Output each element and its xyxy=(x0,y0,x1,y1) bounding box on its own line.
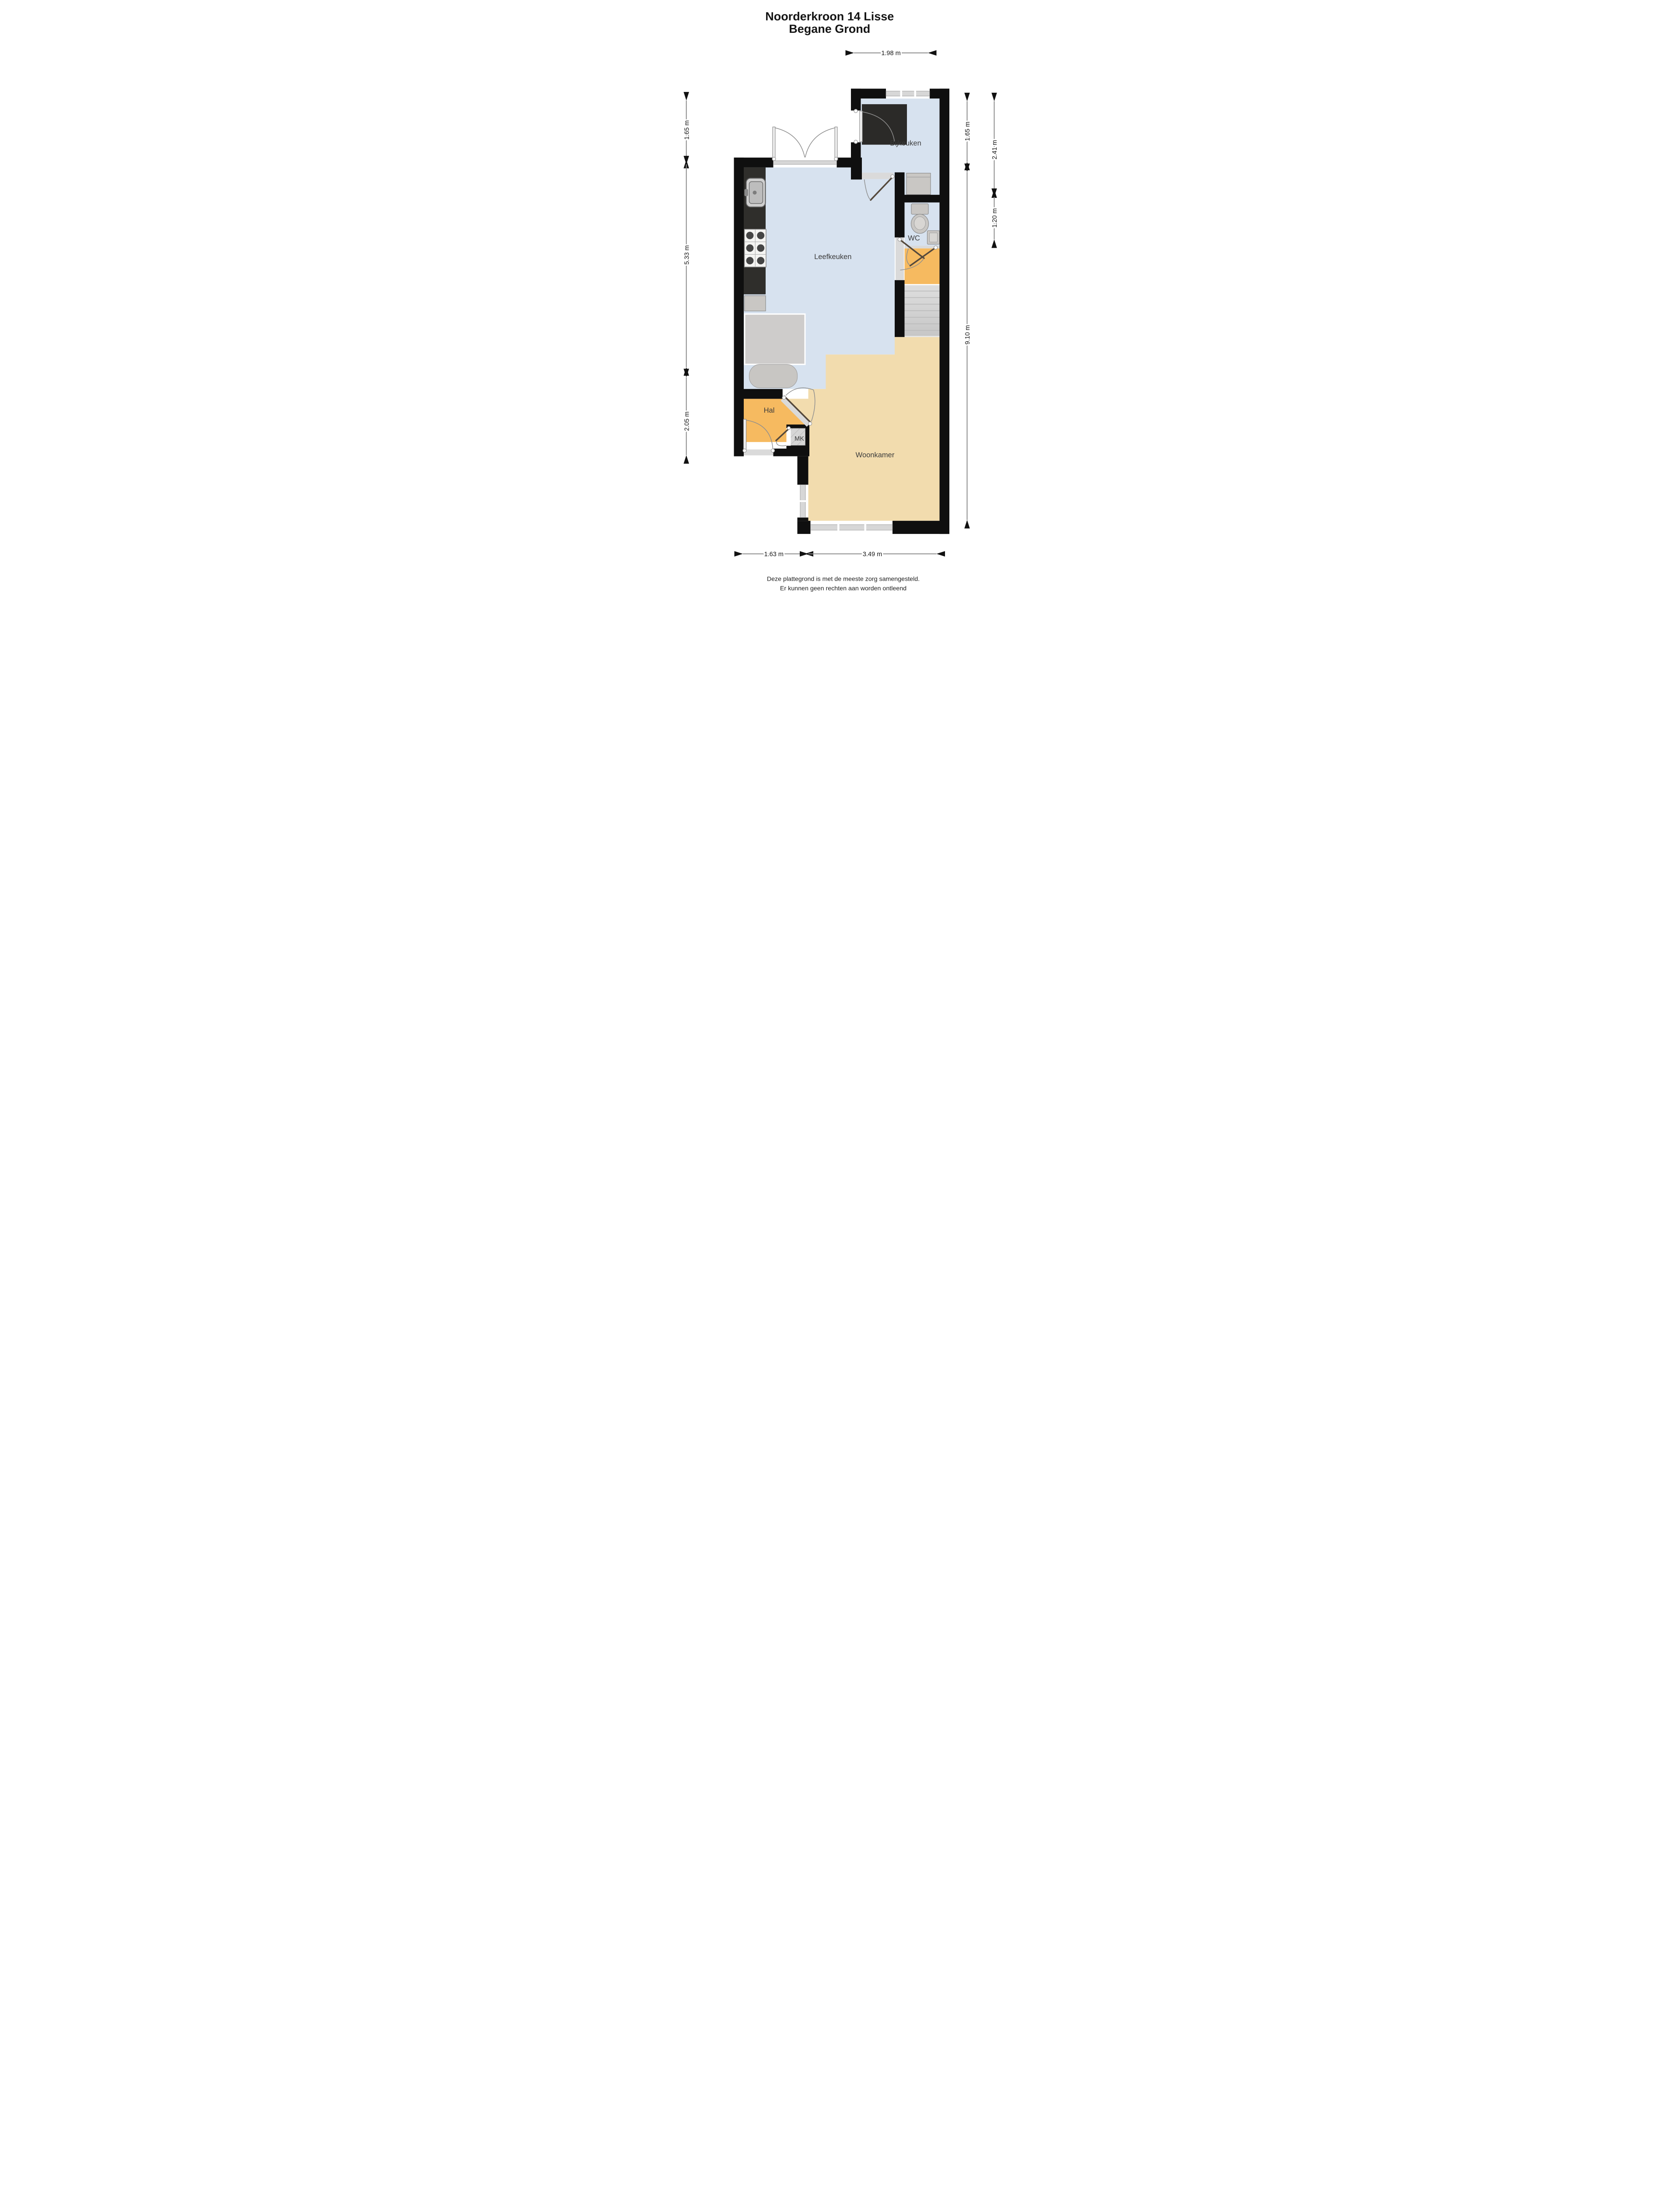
room-label-mk: MK xyxy=(794,435,804,442)
room-label-leefkeuken: Leefkeuken xyxy=(814,253,851,261)
title: Noorderkroon 14 Lisse Begane Grond xyxy=(765,10,894,35)
room-label-bijkeuken: Bijkeuken xyxy=(890,140,921,147)
window-woonkamer-left xyxy=(798,485,808,518)
dimension-right-inner-main: 9.10 m xyxy=(964,325,971,344)
stove-icon xyxy=(745,229,766,267)
kitchen-sink-icon xyxy=(745,178,766,207)
room-label-hal: Hal xyxy=(764,407,775,414)
dimension-left-bottom: 2.05 m xyxy=(683,411,690,431)
window-woonkamer-bottom xyxy=(811,521,893,534)
footer-line-1: Deze plattegrond is met de meeste zorg s… xyxy=(767,576,920,583)
footer-disclaimer: Deze plattegrond is met de meeste zorg s… xyxy=(767,576,920,592)
dimension-bottom-left: 1.63 m xyxy=(764,551,784,558)
double-door xyxy=(772,127,838,168)
floor-plan: Noorderkroon 14 Lisse Begane Grond xyxy=(630,0,1050,594)
washing-machine-icon xyxy=(906,173,931,195)
dimension-right-outer-top: 2.41 m xyxy=(991,140,998,159)
room-label-wc: WC xyxy=(908,235,920,242)
dimension-right-outer-bottom: 1.20 m xyxy=(991,208,998,228)
dimension-right-inner-top: 1.65 m xyxy=(964,122,971,141)
cupboard xyxy=(862,104,907,145)
stairs xyxy=(905,284,940,337)
room-label-woonkamer: Woonkamer xyxy=(856,451,895,459)
kitchen-island xyxy=(745,314,805,365)
table xyxy=(749,365,798,388)
wc-sink-icon xyxy=(927,231,940,244)
title-line-1: Noorderkroon 14 Lisse xyxy=(765,10,894,23)
dimension-left-top: 1.65 m xyxy=(683,120,690,140)
window-bijkeuken-top xyxy=(886,89,930,99)
toilet-icon xyxy=(911,204,929,234)
dimension-bottom-right: 3.49 m xyxy=(863,551,882,558)
kitchen-appliance xyxy=(745,296,766,311)
dimension-left-middle: 5.33 m xyxy=(683,245,690,264)
floor-plan-page: Noorderkroon 14 Lisse Begane Grond xyxy=(630,0,1050,594)
room-floor-landing xyxy=(905,249,940,285)
footer-line-2: Er kunnen geen rechten aan worden ontlee… xyxy=(780,585,906,592)
title-line-2: Begane Grond xyxy=(789,22,870,35)
dimension-top: 1.98 m xyxy=(881,50,900,57)
